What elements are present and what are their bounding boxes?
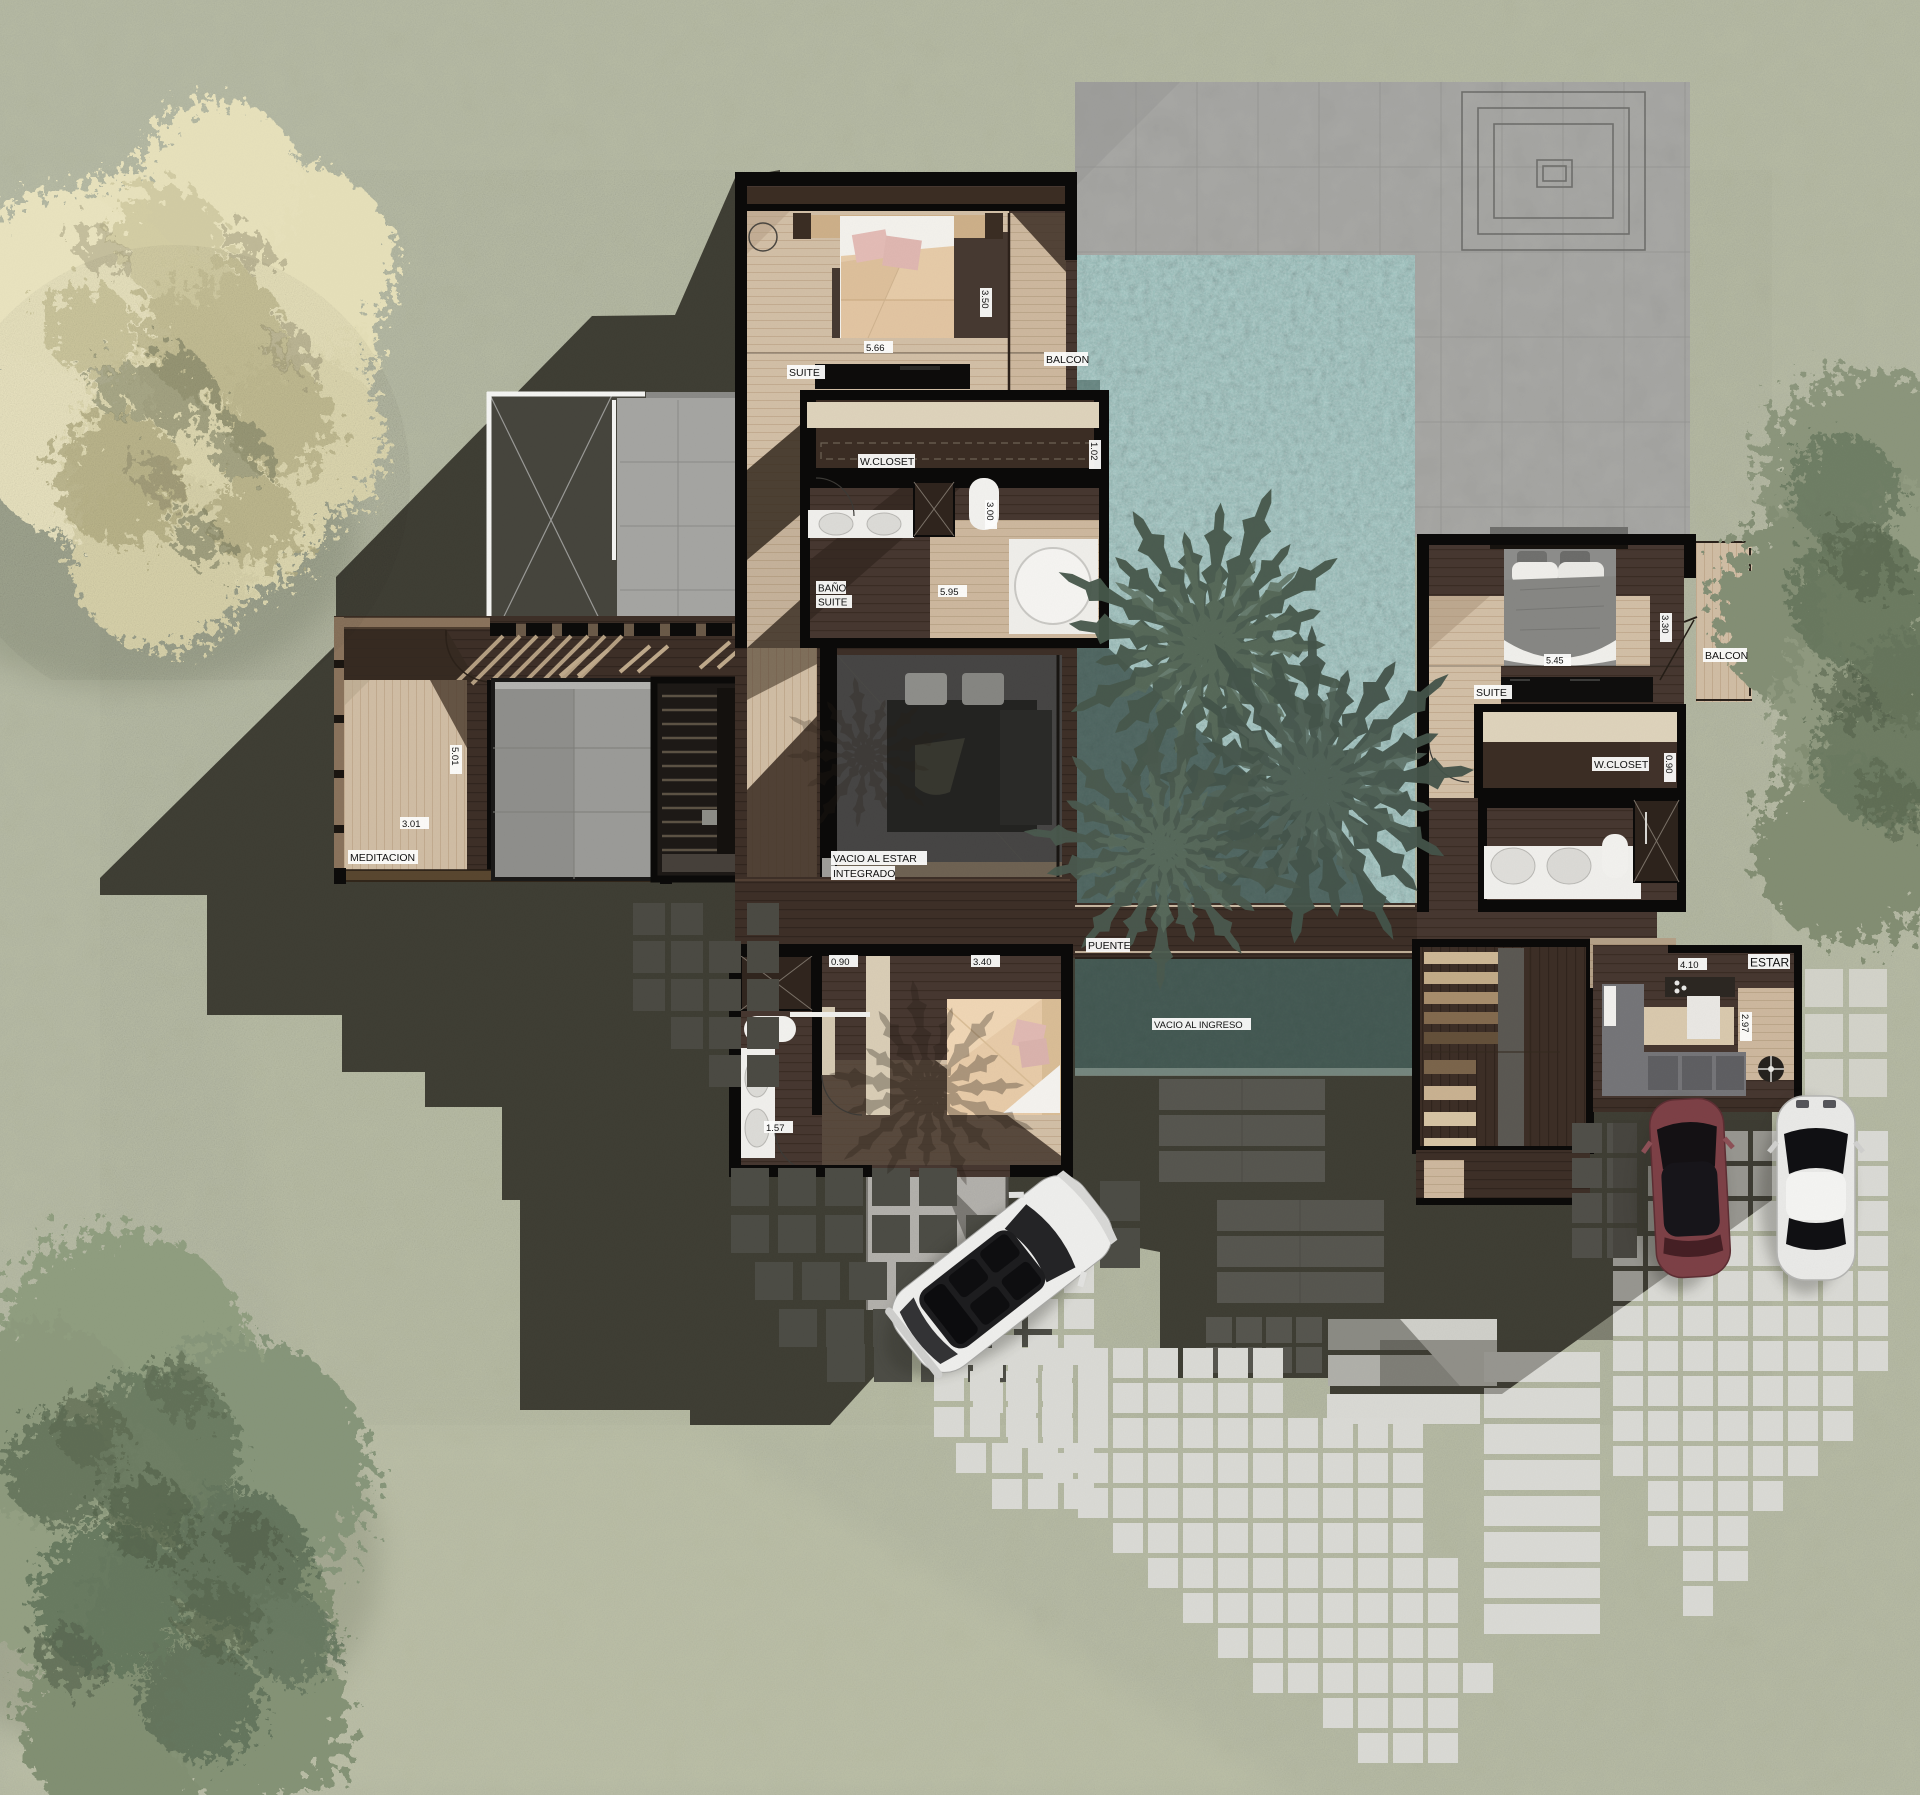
svg-text:SUITE: SUITE xyxy=(1476,687,1507,699)
svg-text:SUITE: SUITE xyxy=(789,367,820,379)
svg-text:3.30: 3.30 xyxy=(1659,615,1670,634)
svg-text:W.CLOSET: W.CLOSET xyxy=(1594,759,1649,771)
svg-text:1.57: 1.57 xyxy=(766,1123,785,1134)
svg-text:3.40: 3.40 xyxy=(973,957,992,968)
svg-text:VACIO AL ESTAR: VACIO AL ESTAR xyxy=(833,853,917,865)
svg-text:3.50: 3.50 xyxy=(979,290,990,309)
svg-text:1.02: 1.02 xyxy=(1088,442,1099,461)
svg-text:BALCON: BALCON xyxy=(1046,354,1089,366)
svg-text:5.45: 5.45 xyxy=(1546,656,1564,666)
svg-text:2.97: 2.97 xyxy=(1739,1014,1750,1033)
svg-text:0.90: 0.90 xyxy=(1663,755,1674,774)
svg-text:5.01: 5.01 xyxy=(449,747,460,766)
svg-text:5.66: 5.66 xyxy=(866,343,885,354)
svg-text:VACIO AL INGRESO: VACIO AL INGRESO xyxy=(1154,1020,1243,1031)
svg-text:5.95: 5.95 xyxy=(940,587,959,598)
svg-text:MEDITACION: MEDITACION xyxy=(350,852,415,864)
svg-text:SUITE: SUITE xyxy=(818,598,848,609)
svg-text:BALCON: BALCON xyxy=(1705,650,1748,662)
svg-text:W.CLOSET: W.CLOSET xyxy=(860,456,915,468)
svg-text:3.00: 3.00 xyxy=(984,502,995,521)
svg-text:INTEGRADO: INTEGRADO xyxy=(833,868,895,880)
svg-text:4.10: 4.10 xyxy=(1680,960,1699,971)
svg-text:0.90: 0.90 xyxy=(831,957,850,968)
svg-text:ESTAR: ESTAR xyxy=(1750,956,1789,970)
svg-text:3.01: 3.01 xyxy=(402,819,421,830)
svg-text:BAÑO: BAÑO xyxy=(818,582,847,595)
svg-text:PUENTE: PUENTE xyxy=(1088,940,1131,952)
